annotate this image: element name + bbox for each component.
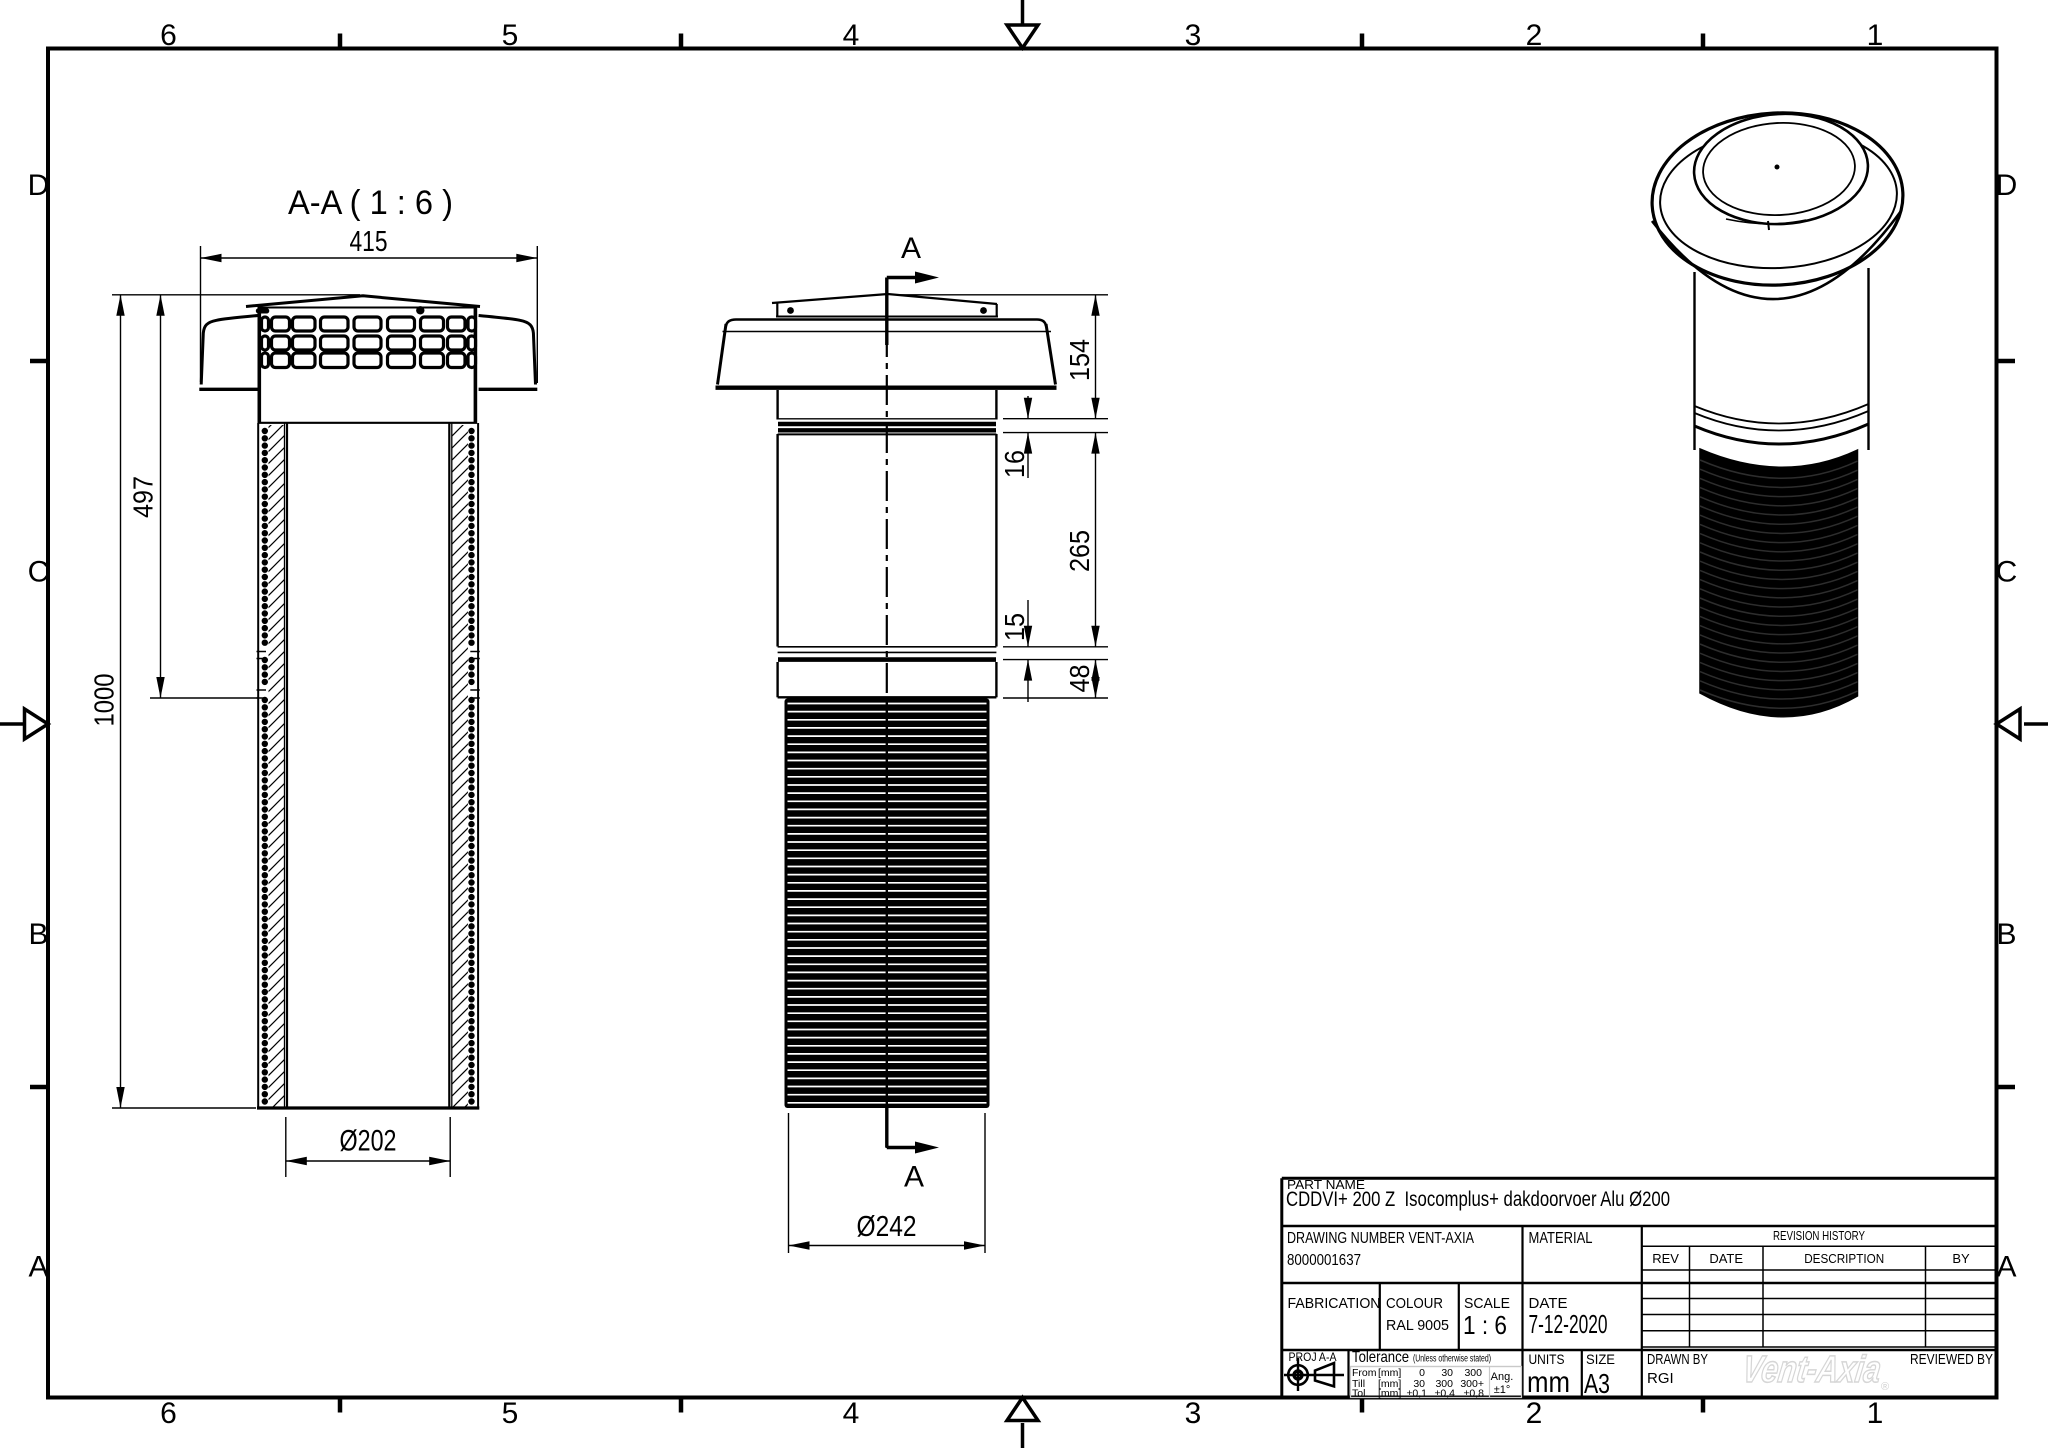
svg-text:Ø202: Ø202 (340, 1125, 397, 1158)
svg-text:A: A (1996, 1251, 2016, 1284)
svg-text:REV: REV (1652, 1251, 1679, 1266)
svg-text:PROJ A-A: PROJ A-A (1289, 1352, 1337, 1364)
svg-text:1: 1 (1867, 19, 1884, 52)
svg-text:DATE: DATE (1709, 1251, 1743, 1266)
svg-text:8000001637: 8000001637 (1287, 1252, 1361, 1269)
svg-text:(Unless otherwise stated): (Unless otherwise stated) (1413, 1354, 1491, 1365)
svg-text:FABRICATION: FABRICATION (1288, 1295, 1381, 1312)
svg-text:REVIEWED BY: REVIEWED BY (1910, 1351, 1993, 1368)
svg-text:6: 6 (160, 1397, 177, 1430)
svg-text:BY: BY (1952, 1251, 1970, 1266)
svg-text:±1°: ±1° (1494, 1384, 1511, 1396)
svg-text:RAL 9005: RAL 9005 (1386, 1317, 1449, 1334)
svg-text:B: B (28, 918, 48, 951)
svg-text:Tolerance: Tolerance (1352, 1349, 1409, 1366)
svg-text:A: A (901, 232, 921, 265)
svg-text:5: 5 (502, 1397, 519, 1430)
svg-text:RGI: RGI (1647, 1370, 1674, 1387)
svg-text:2: 2 (1526, 19, 1543, 52)
svg-text:UNITS: UNITS (1529, 1351, 1565, 1367)
svg-text:D: D (28, 169, 50, 202)
svg-text:Vent-Axia: Vent-Axia (1740, 1348, 1884, 1391)
svg-text:4: 4 (843, 19, 860, 52)
svg-text:CDDVI+ 200 Z Isocomplus+ dakd: CDDVI+ 200 Z Isocomplus+ dakdoorvoer Alu… (1286, 1188, 1670, 1211)
svg-text:4: 4 (843, 1397, 860, 1430)
svg-text:Ang.: Ang. (1491, 1371, 1514, 1383)
svg-text:A: A (28, 1251, 48, 1284)
svg-text:265: 265 (1064, 530, 1095, 572)
svg-text:2: 2 (1526, 1397, 1543, 1430)
svg-text:D: D (1996, 169, 2018, 202)
svg-text:15: 15 (999, 613, 1030, 641)
svg-text:REVISION HISTORY: REVISION HISTORY (1773, 1228, 1865, 1243)
svg-text:SIZE: SIZE (1586, 1351, 1615, 1367)
svg-text:C: C (28, 556, 50, 589)
svg-text:6: 6 (160, 19, 177, 52)
svg-text:mm: mm (1527, 1366, 1570, 1399)
svg-text:48: 48 (1064, 665, 1095, 693)
svg-text:7-12-2020: 7-12-2020 (1529, 1309, 1608, 1339)
svg-text:497: 497 (128, 476, 159, 518)
svg-text:A-A ( 1 : 6 ): A-A ( 1 : 6 ) (288, 184, 453, 222)
svg-text:A3: A3 (1584, 1368, 1610, 1399)
svg-text:±0,1: ±0,1 (1407, 1388, 1428, 1400)
svg-text:®: ® (1881, 1381, 1889, 1393)
svg-text:1000: 1000 (89, 674, 120, 727)
svg-text:COLOUR: COLOUR (1386, 1295, 1443, 1312)
svg-text:B: B (1996, 918, 2016, 951)
svg-text:±0,4: ±0,4 (1435, 1388, 1456, 1400)
svg-text:154: 154 (1064, 339, 1095, 381)
svg-text:16: 16 (999, 450, 1030, 478)
svg-text:1 : 6: 1 : 6 (1463, 1310, 1507, 1340)
svg-text:3: 3 (1185, 1397, 1202, 1430)
svg-text:3: 3 (1185, 19, 1202, 52)
svg-text:DRAWN BY: DRAWN BY (1647, 1351, 1708, 1368)
svg-text:5: 5 (502, 19, 519, 52)
svg-text:A: A (904, 1161, 924, 1194)
svg-text:Tol.: Tol. (1352, 1388, 1368, 1400)
svg-text:DESCRIPTION: DESCRIPTION (1804, 1251, 1884, 1266)
svg-text:DRAWING NUMBER VENT-AXIA: DRAWING NUMBER VENT-AXIA (1287, 1230, 1474, 1247)
svg-text:415: 415 (350, 226, 388, 258)
svg-text:C: C (1996, 556, 2018, 589)
svg-text:[mm]: [mm] (1378, 1388, 1401, 1400)
svg-text:1: 1 (1867, 1397, 1884, 1430)
svg-text:±0,8: ±0,8 (1464, 1388, 1485, 1400)
svg-text:Ø242: Ø242 (857, 1211, 917, 1243)
svg-text:MATERIAL: MATERIAL (1529, 1230, 1593, 1247)
